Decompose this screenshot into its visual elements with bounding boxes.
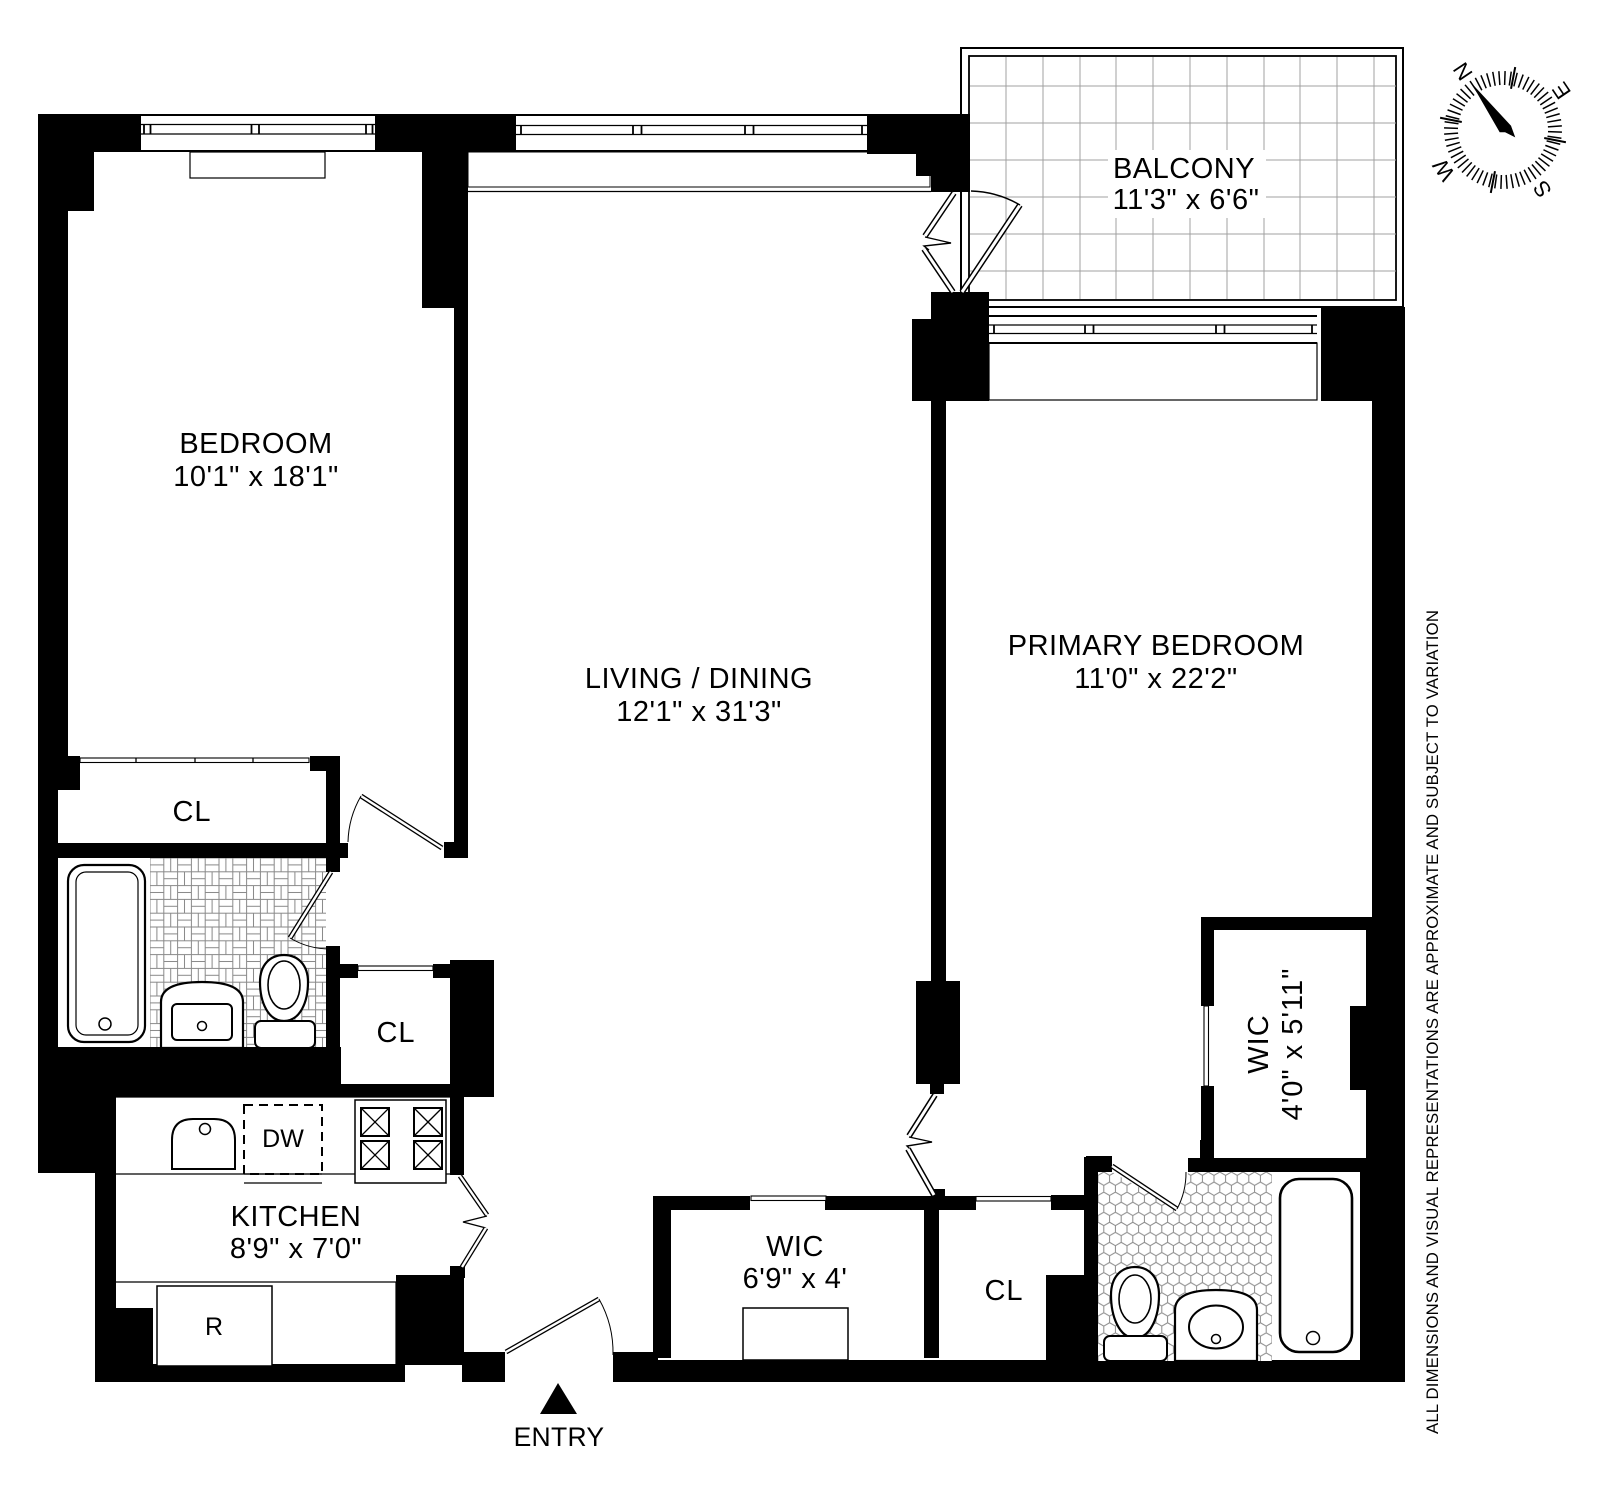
svg-text:LIVING / DINING: LIVING / DINING — [585, 663, 813, 695]
svg-text:11'3" x 6'6": 11'3" x 6'6" — [1113, 184, 1260, 216]
svg-text:CL: CL — [376, 1017, 415, 1049]
svg-text:BEDROOM: BEDROOM — [179, 428, 332, 460]
svg-text:PRIMARY BEDROOM: PRIMARY BEDROOM — [1008, 630, 1304, 662]
svg-text:11'0" x 22'2": 11'0" x 22'2" — [1074, 663, 1237, 695]
svg-text:DW: DW — [262, 1125, 304, 1153]
svg-text:CL: CL — [984, 1275, 1023, 1307]
svg-text:8'9" x 7'0": 8'9" x 7'0" — [230, 1233, 362, 1265]
svg-text:10'1" x 18'1": 10'1" x 18'1" — [173, 461, 339, 493]
svg-text:ENTRY: ENTRY — [514, 1422, 605, 1452]
svg-text:WIC: WIC — [766, 1231, 824, 1263]
svg-text:BALCONY: BALCONY — [1113, 153, 1255, 185]
svg-text:6'9" x 4': 6'9" x 4' — [743, 1263, 848, 1295]
svg-text:4'0" x 5'11": 4'0" x 5'11" — [1277, 968, 1309, 1121]
svg-text:12'1" x 31'3": 12'1" x 31'3" — [616, 696, 782, 728]
svg-text:CL: CL — [172, 796, 211, 828]
svg-text:R: R — [205, 1313, 223, 1341]
svg-text:KITCHEN: KITCHEN — [231, 1201, 362, 1233]
svg-text:WIC: WIC — [1243, 1014, 1275, 1073]
svg-text:ALL DIMENSIONS AND VISUAL REPR: ALL DIMENSIONS AND VISUAL REPRESENTATION… — [1423, 610, 1442, 1434]
